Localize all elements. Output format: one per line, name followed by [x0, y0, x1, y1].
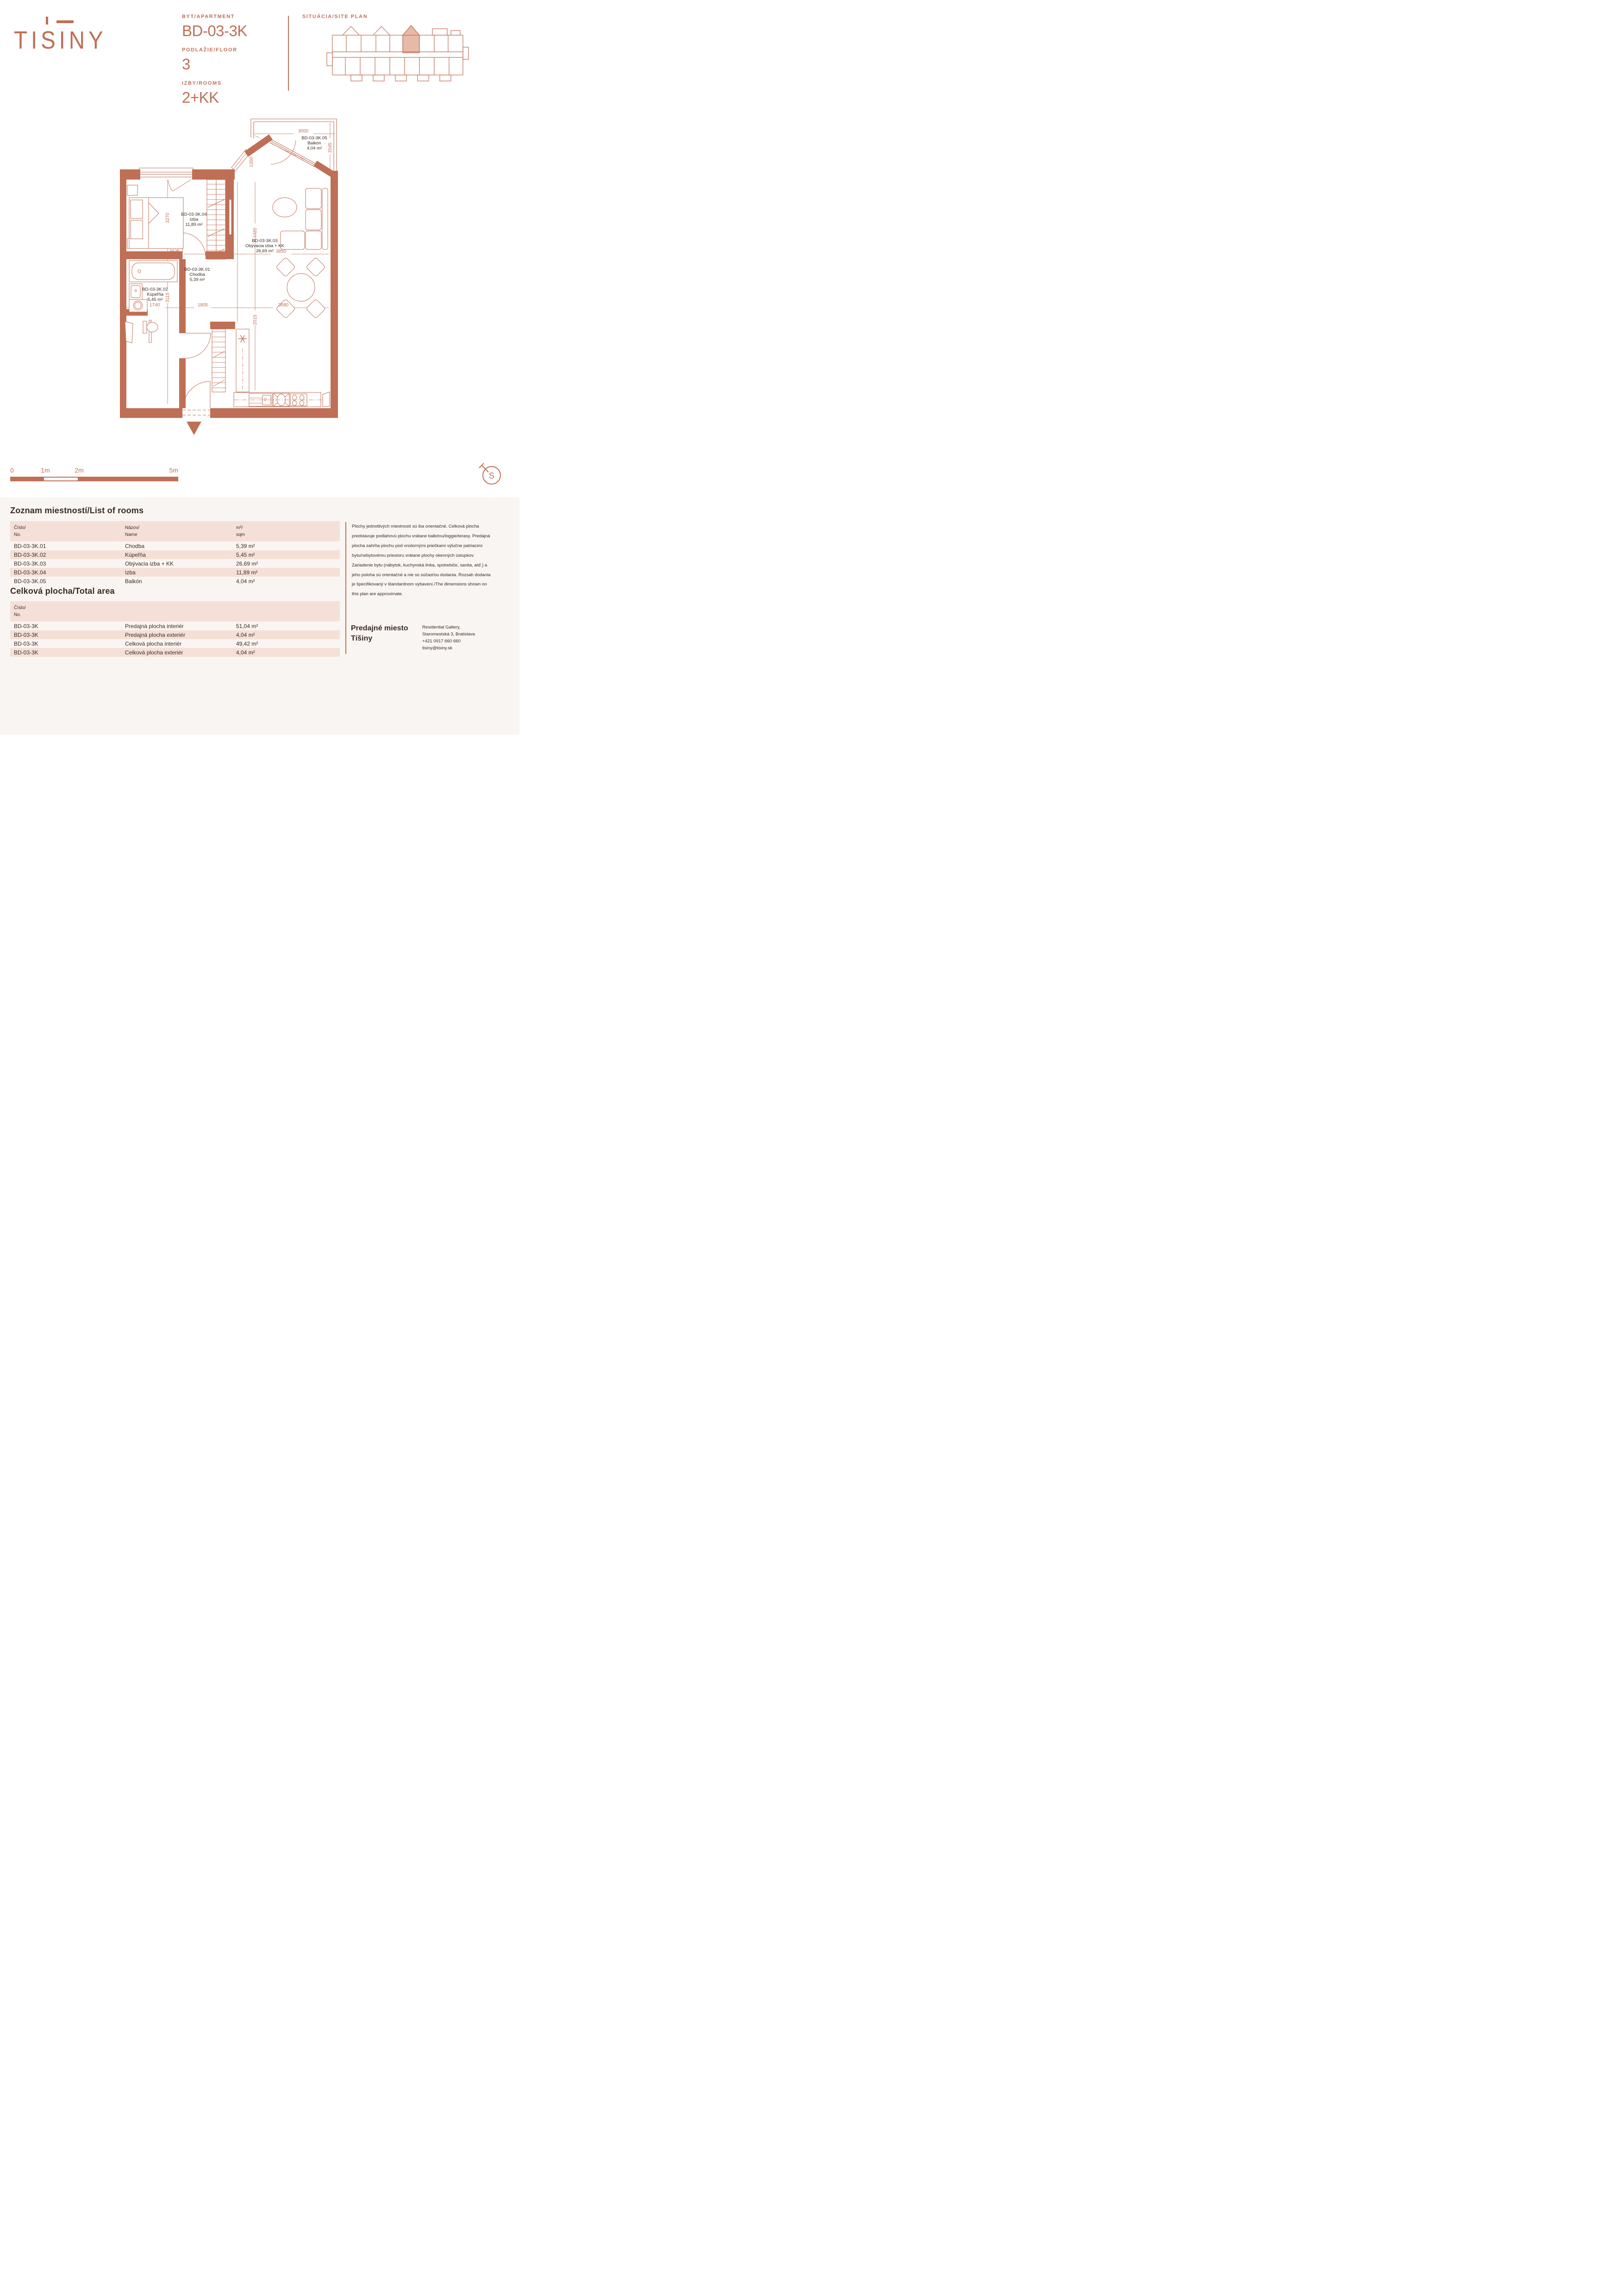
scale-1m: 1m — [41, 467, 50, 474]
living-area: 26,69 m² — [256, 249, 274, 254]
dim-kitchen-depth: 2015 — [253, 314, 258, 325]
disclaimer-text: Plochy jednotlivých miestností sú iba or… — [352, 522, 494, 599]
floor-value: 3 — [182, 56, 284, 73]
logo: TISINY — [14, 26, 119, 55]
rooms-table-title: Zoznam miestností/List of rooms — [10, 506, 144, 516]
apartment-info: BYT/APARTMENT BD-03-3K PODLAŽIE/FLOOR 3 … — [182, 14, 284, 106]
scale-0: 0 — [10, 467, 14, 474]
hall-area: 5,39 m² — [190, 277, 205, 282]
sales-point: Predajné miesto Tíšiny — [351, 623, 408, 644]
dim-bedroom-depth: 3270 — [165, 212, 170, 223]
table-row: BD-03-3KCelková plocha interiér49,42 m² — [10, 639, 340, 648]
rooms-col-number: Číslo/No. — [10, 521, 121, 541]
siteplan-highlighted-unit — [403, 25, 419, 53]
dim-bath-depth: 3115 — [165, 292, 170, 303]
table-row: BD-03-3K.04Izba11,89 m² — [10, 568, 340, 577]
rooms-col-name: Názov/Name — [121, 521, 232, 541]
dim-bath-width: 1740 — [150, 303, 160, 308]
dim-bedroom-width: 3635 — [169, 249, 180, 254]
contact-line: Residential Gallery, — [422, 624, 475, 631]
hall-name: Chodba — [189, 272, 205, 277]
header-divider — [288, 16, 289, 91]
balcony-glazing — [231, 140, 316, 171]
doors — [182, 233, 211, 415]
bath-id: BD-03-3K.02 — [142, 287, 168, 292]
table-row: BD-03-3KPredajná plocha interiér51,04 m² — [10, 622, 340, 630]
table-row: BD-03-3K.03Obývacia izba + KK26,69 m² — [10, 559, 340, 568]
table-row: BD-03-3K.02Kúpeľňa5,45 m² — [10, 550, 340, 559]
total-table-title: Celková plocha/Total area — [10, 586, 115, 596]
dim-living-depth: 4485 — [253, 227, 258, 238]
compass-letter: S — [489, 471, 494, 480]
table-row: BD-03-3KCelková plocha exteriér4,04 m² — [10, 648, 340, 657]
table-row: BD-03-3K.05Balkón4,04 m² — [10, 577, 340, 585]
floor-label: PODLAŽIE/FLOOR — [182, 47, 284, 53]
tables-section: Zoznam miestností/List of rooms Číslo/No… — [0, 498, 519, 734]
bedroom-area: 11,89 m² — [185, 222, 203, 227]
entrance-arrow-icon — [187, 422, 201, 435]
floorplan-sheet: TISINY BYT/APARTMENT BD-03-3K PODLAŽIE/F… — [0, 0, 519, 734]
total-table: Číslo/No. BD-03-3KPredajná plocha interi… — [10, 601, 340, 657]
balcony-door-swing-arc — [271, 140, 296, 164]
contact-line: tisiny@tisiny.sk — [422, 645, 475, 652]
sales-point-line1: Predajné miesto — [351, 623, 408, 634]
living-name: Obývacia izba + KK — [245, 243, 285, 249]
balcony-id: BD-03-3K.05 — [301, 136, 327, 141]
dim-balcony-width: 3000 — [298, 129, 309, 134]
bedroom-window — [139, 168, 193, 191]
hall-id: BD-03-3K.01 — [184, 267, 210, 272]
star-symbol-icon — [238, 335, 247, 342]
sales-point-line2: Tíšiny — [351, 634, 408, 644]
total-table-header-row: Číslo/No. — [10, 601, 340, 622]
siteplan-label: SITUÁCIA/SITE PLAN — [302, 14, 368, 19]
table-row: BD-03-3K.01Chodba5,39 m² — [10, 541, 340, 550]
dim-balcony-depth: 2045 — [328, 142, 333, 153]
bath-name: Kúpeľňa — [147, 292, 164, 297]
kitchen — [234, 392, 330, 407]
rooms-col-area: m²/sqm — [232, 521, 340, 541]
scale-bar-white-segment — [44, 478, 78, 480]
rooms-table-header-row: Číslo/No. Názov/Name m²/sqm — [10, 521, 340, 541]
dim-living-width: 3850 — [276, 249, 287, 254]
contact-line: Staromestská 3, Bratislava — [422, 631, 475, 638]
apartment-label: BYT/APARTMENT — [182, 14, 284, 19]
north-compass-icon: S — [478, 462, 505, 488]
total-col-number: Číslo/No. — [10, 601, 121, 622]
bedroom-name: Izba — [190, 217, 199, 222]
balcony-area: 4,04 m² — [307, 146, 322, 151]
bath-area: 5,45 m² — [148, 297, 163, 302]
bedroom-wardrobe — [207, 180, 225, 259]
logo-wordmark: TISINY — [14, 26, 107, 55]
logo-accent-dash-icon — [56, 20, 74, 23]
living-id: BD-03-3K.03 — [252, 238, 277, 243]
rooms-value: 2+KK — [182, 89, 284, 106]
scale-bar: 0 1m 2m 5m — [10, 467, 178, 481]
rooms-table: Číslo/No. Názov/Name m²/sqm BD-03-3K.01C… — [10, 521, 340, 585]
rooms-label: IZBY/ROOMS — [182, 81, 284, 86]
apartment-value: BD-03-3K — [182, 22, 284, 40]
dim-balcony-side: 1350 — [249, 156, 254, 167]
bedroom-id: BD-03-3K.04 — [181, 212, 207, 217]
notes-divider — [345, 522, 346, 654]
balcony-name: Balkón — [307, 141, 321, 146]
scale-bar-graphic — [10, 477, 178, 481]
logo-accent-tick-icon — [46, 17, 48, 25]
scale-5m: 5m — [169, 467, 178, 474]
siteplan-drawing — [325, 19, 471, 87]
floor-plan: 3000 2045 1350 3270 3635 4485 3850 1740 … — [115, 112, 409, 442]
table-row: BD-03-3KPredajná plocha exteriér4,04 m² — [10, 630, 340, 639]
dim-kitchen-width: 3680 — [278, 303, 289, 308]
scale-2m: 2m — [75, 467, 83, 474]
contact-block: Residential Gallery, Staromestská 3, Bra… — [422, 624, 475, 652]
contact-line: +421 0917 660 660 — [422, 638, 475, 645]
dim-hall-width: 1805 — [198, 303, 208, 308]
